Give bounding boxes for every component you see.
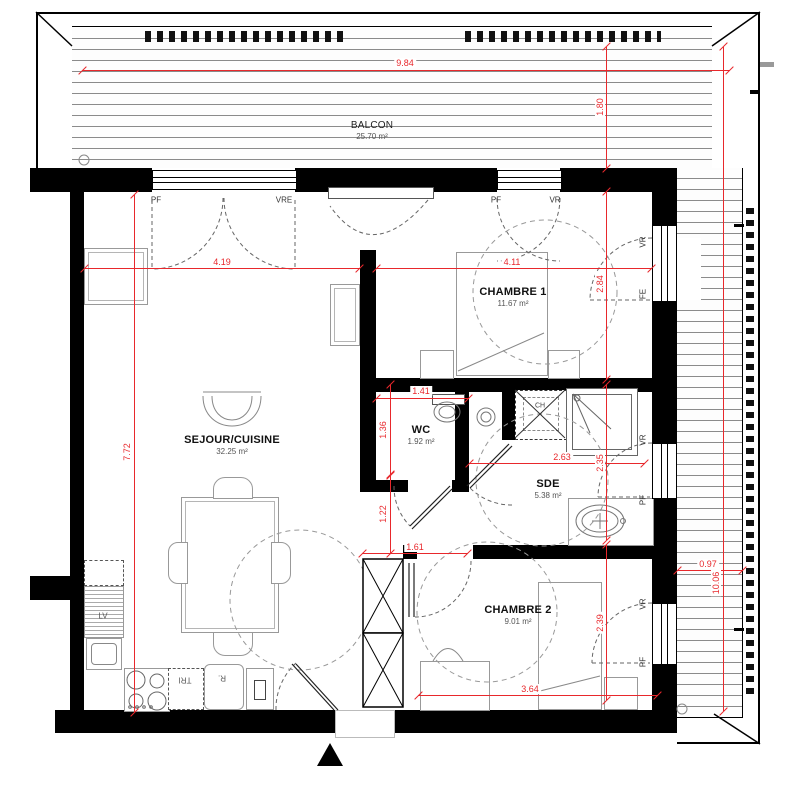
dim-line-chambre2-width: [418, 695, 658, 696]
window-label-vr-chambre2: VR: [639, 598, 648, 609]
floor-plan: BALCON 25.70 m² SEJOUR/CUISINE 32.25 m² …: [0, 0, 796, 800]
dim-line-chambre2-depth: [606, 545, 607, 700]
window-label-pf-chambre2: PF: [639, 657, 648, 667]
dim-balcon-east-width: 0.97: [697, 559, 719, 569]
room-label-wc: WC 1.92 m²: [386, 424, 456, 446]
window-label-fe-chambre1: FE: [639, 289, 648, 299]
sejour-area: 32.25 m²: [157, 447, 307, 456]
chambre2-area: 9.01 m²: [458, 617, 578, 626]
window-label-vr-mid: VR: [549, 196, 560, 205]
window-label-pf-sde: PF: [639, 495, 648, 505]
dim-sde-width: 2.63: [551, 452, 573, 462]
dim-line-hall-height: [390, 475, 391, 553]
window-label-pf-mid: PF: [491, 196, 501, 205]
water-heater-label: CH: [535, 403, 545, 410]
room-label-chambre2: CHAMBRE 2 9.01 m²: [458, 604, 578, 626]
room-label-sde: SDE 5.38 m²: [503, 478, 593, 500]
dim-line-balcon-width: [82, 70, 730, 71]
dim-balcon-width: 9.84: [394, 58, 416, 68]
dim-chambre2-depth: 2.39: [595, 612, 605, 634]
balcon-area: 25.70 m²: [312, 132, 432, 141]
dim-line-sejour-height: [134, 195, 135, 712]
dim-hall-height: 1.22: [378, 503, 388, 525]
dishwasher-label: LV: [98, 612, 107, 621]
wc-name: WC: [386, 424, 456, 436]
dim-line-chambre1-width: [376, 268, 652, 269]
chambre2-name: CHAMBRE 2: [458, 604, 578, 616]
sde-area: 5.38 m²: [503, 491, 593, 500]
chambre1-name: CHAMBRE 1: [453, 286, 573, 298]
dim-line-balcon-east-height: [723, 47, 724, 711]
dim-line-wc-depth: [390, 385, 391, 475]
sde-name: SDE: [503, 478, 593, 490]
dim-sde-depth: 2.35: [595, 452, 605, 474]
room-label-sejour: SEJOUR/CUISINE 32.25 m²: [157, 434, 307, 456]
dim-balcon-east-height: 10.06: [711, 570, 721, 597]
window-label-pf-left: PF: [151, 196, 161, 205]
water-heater-cross: [515, 390, 565, 438]
balcon-name: BALCON: [312, 120, 432, 131]
dim-line-sde-depth: [606, 385, 607, 540]
dim-line-sde-width: [469, 463, 645, 464]
dim-line-sejour-width: [84, 268, 360, 269]
closet-boxes: [363, 559, 403, 707]
dim-balcon-depth: 1.80: [595, 96, 605, 118]
dim-line-balcon-depth: [606, 47, 607, 168]
dim-chambre1-width: 4.11: [502, 257, 523, 267]
dim-chambre2-width: 3.64: [519, 684, 541, 694]
sejour-name: SEJOUR/CUISINE: [157, 434, 307, 446]
wc-area: 1.92 m²: [386, 437, 456, 446]
window-label-vre: VRE: [276, 196, 292, 205]
dim-line-chambre1-depth: [606, 192, 607, 379]
dim-line-balcon-east-width: [677, 570, 743, 571]
dim-wc-width: 1.41: [410, 386, 432, 396]
dim-chambre1-depth: 2.84: [595, 273, 605, 295]
dim-sejour-height: 7.72: [122, 441, 132, 463]
dim-hall-width: 1.61: [404, 542, 426, 552]
dim-sejour-width: 4.19: [211, 257, 233, 267]
dim-wc-depth: 1.36: [378, 419, 388, 441]
room-label-balcon: BALCON 25.70 m²: [312, 120, 432, 141]
entrance-arrow: [317, 743, 343, 766]
room-label-chambre1: CHAMBRE 1 11.67 m²: [453, 286, 573, 308]
chambre1-area: 11.67 m²: [453, 299, 573, 308]
fridge-label: R.: [218, 674, 226, 683]
window-label-vr-sde: VR: [639, 434, 648, 445]
dim-line-hall-width: [362, 553, 468, 554]
waste-sorting-label: TRI: [179, 676, 192, 685]
window-label-vr-chambre1: VR: [639, 236, 648, 247]
